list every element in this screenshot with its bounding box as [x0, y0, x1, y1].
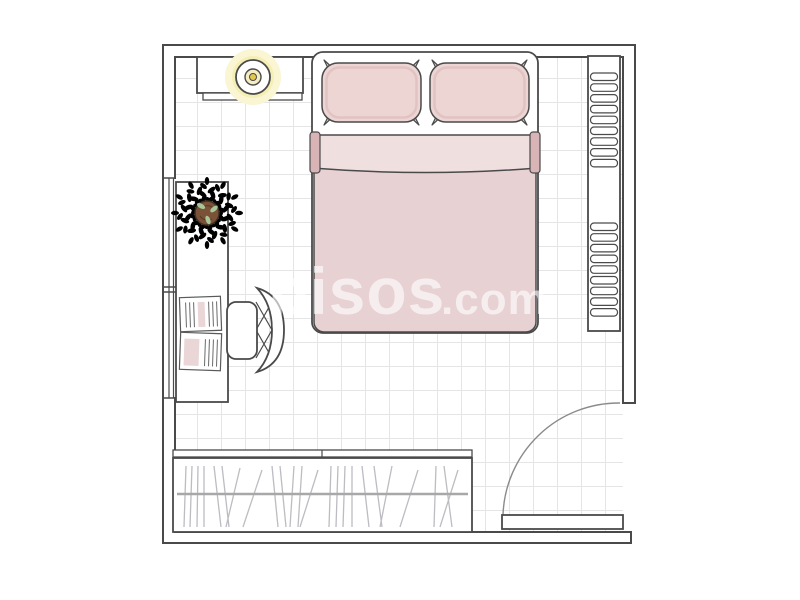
- pillow-left: [322, 60, 421, 125]
- radiator-slats-top: [591, 73, 618, 167]
- chair-seat: [227, 302, 257, 359]
- radiator-slats-bottom: [591, 223, 618, 316]
- wardrobe: [173, 450, 472, 532]
- door-leaf: [502, 515, 623, 529]
- pillow-right: [430, 60, 529, 125]
- floorplan: pisos .com: [0, 0, 800, 600]
- window: [163, 178, 175, 398]
- watermark-suffix: .com: [441, 275, 548, 324]
- floorplan-canvas: pisos .com: [0, 0, 800, 600]
- open-notebook: [179, 296, 221, 370]
- sheet-band: [312, 135, 538, 173]
- radiator-shelf: [588, 56, 620, 331]
- watermark-brand: pisos: [268, 254, 445, 328]
- ceiling-light: [225, 49, 281, 105]
